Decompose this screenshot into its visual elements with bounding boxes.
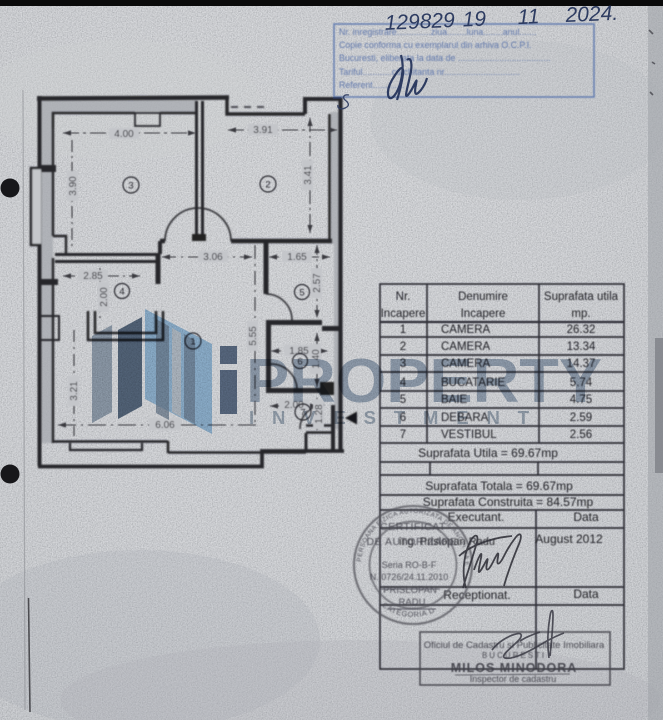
svg-text:2: 2 bbox=[265, 180, 270, 191]
svg-text:4.00: 4.00 bbox=[114, 129, 134, 140]
svg-text:Suprafata Construita = 84.57mp: Suprafata Construita = 84.57mp bbox=[423, 495, 594, 509]
svg-text:3.90: 3.90 bbox=[68, 176, 79, 196]
svg-text:Copie conforma cu exemplarul d: Copie conforma cu exemplarul din arhiva … bbox=[339, 40, 531, 50]
svg-text:VESTIBUL: VESTIBUL bbox=[441, 429, 497, 441]
svg-text:5: 5 bbox=[299, 288, 304, 299]
svg-text:Tariful............cu chitanta: Tariful............cu chitanta nr.......… bbox=[339, 67, 520, 77]
svg-text:August 2012: August 2012 bbox=[535, 532, 603, 546]
svg-text:26.32: 26.32 bbox=[567, 324, 596, 336]
svg-text:Executant.: Executant. bbox=[448, 510, 505, 524]
svg-text:N. 0726/24.11.2010: N. 0726/24.11.2010 bbox=[370, 572, 448, 582]
svg-text:2.56: 2.56 bbox=[570, 429, 592, 441]
svg-text:3.41: 3.41 bbox=[303, 165, 314, 185]
svg-text:Data: Data bbox=[573, 587, 599, 601]
svg-text:2.57: 2.57 bbox=[312, 273, 323, 293]
svg-text:Nr.: Nr. bbox=[396, 291, 411, 303]
svg-text:PROPERTY: PROPERTY bbox=[246, 347, 602, 416]
svg-text:Denumire: Denumire bbox=[458, 291, 508, 303]
svg-text:5.55: 5.55 bbox=[248, 326, 259, 346]
svg-text:3: 3 bbox=[128, 181, 133, 192]
svg-text:PRISLOPAN: PRISLOPAN bbox=[383, 585, 437, 596]
svg-text:RADU: RADU bbox=[399, 597, 426, 608]
svg-text:2.00: 2.00 bbox=[99, 287, 110, 307]
svg-text:Bucuresti, eliberata la data d: Bucuresti, eliberata la data de ........… bbox=[339, 53, 551, 63]
svg-text:6.06: 6.06 bbox=[155, 420, 175, 431]
svg-text:Incapere: Incapere bbox=[381, 308, 426, 320]
svg-text:Referent.............: Referent............. bbox=[339, 80, 405, 90]
svg-text:2.85: 2.85 bbox=[83, 271, 103, 282]
svg-text:Inspector de cadastru: Inspector de cadastru bbox=[470, 674, 557, 684]
svg-text:3.06: 3.06 bbox=[203, 252, 223, 263]
svg-text:Receptionat.: Receptionat. bbox=[443, 588, 510, 602]
svg-text:4: 4 bbox=[119, 287, 124, 298]
svg-text:mp.: mp. bbox=[571, 308, 590, 320]
svg-text:7: 7 bbox=[400, 429, 406, 441]
svg-text:B U C U R E S T I: B U C U R E S T I bbox=[482, 651, 544, 660]
svg-text:CAMERA: CAMERA bbox=[441, 324, 491, 336]
svg-text:Suprafata Utila = 69.67mp: Suprafata Utila = 69.67mp bbox=[418, 446, 558, 460]
svg-text:Suprafata utila: Suprafata utila bbox=[544, 291, 619, 303]
svg-text:Seria RO-B-F: Seria RO-B-F bbox=[382, 560, 437, 570]
svg-text:Data: Data bbox=[573, 510, 599, 524]
svg-text:CERTIFICAT: CERTIFICAT bbox=[380, 521, 446, 533]
svg-text:1.65: 1.65 bbox=[287, 252, 307, 263]
svg-text:Incapere: Incapere bbox=[461, 308, 506, 320]
svg-text:MILOS MINODORA: MILOS MINODORA bbox=[451, 661, 578, 675]
svg-text:3.91: 3.91 bbox=[253, 125, 273, 136]
svg-text:3.21: 3.21 bbox=[69, 381, 80, 401]
svg-text:DE AUTORIZARE: DE AUTORIZARE bbox=[367, 536, 458, 548]
svg-text:1: 1 bbox=[400, 324, 406, 336]
svg-text:Suprafata Totala = 69.67mp: Suprafata Totala = 69.67mp bbox=[425, 479, 573, 493]
